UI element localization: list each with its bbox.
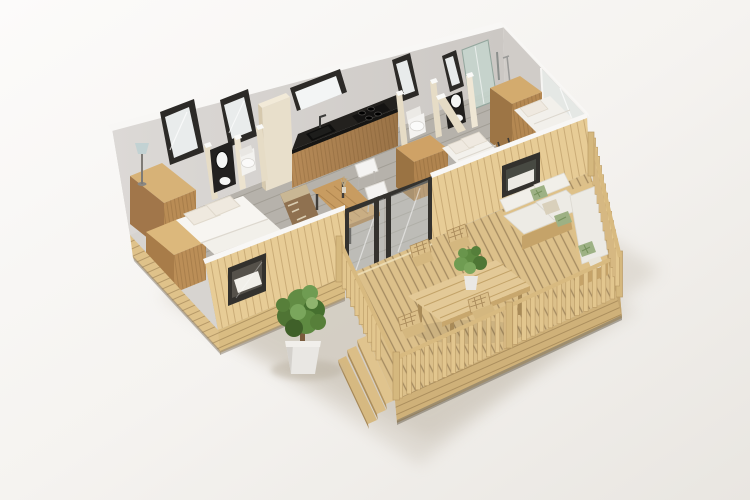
plant-pot (464, 276, 478, 290)
door-post (428, 176, 432, 244)
railing-post (393, 352, 400, 400)
railing-post (588, 132, 594, 176)
floorplan-render (0, 0, 750, 500)
railing-post (336, 236, 342, 282)
railing-post (506, 302, 513, 348)
mirror-2 (451, 94, 462, 108)
render-canvas (0, 0, 750, 500)
mirror-1 (216, 152, 228, 169)
door-post (374, 196, 379, 265)
door-post (386, 192, 391, 260)
vanity-1 (210, 141, 236, 193)
washbasin-1 (220, 177, 231, 185)
